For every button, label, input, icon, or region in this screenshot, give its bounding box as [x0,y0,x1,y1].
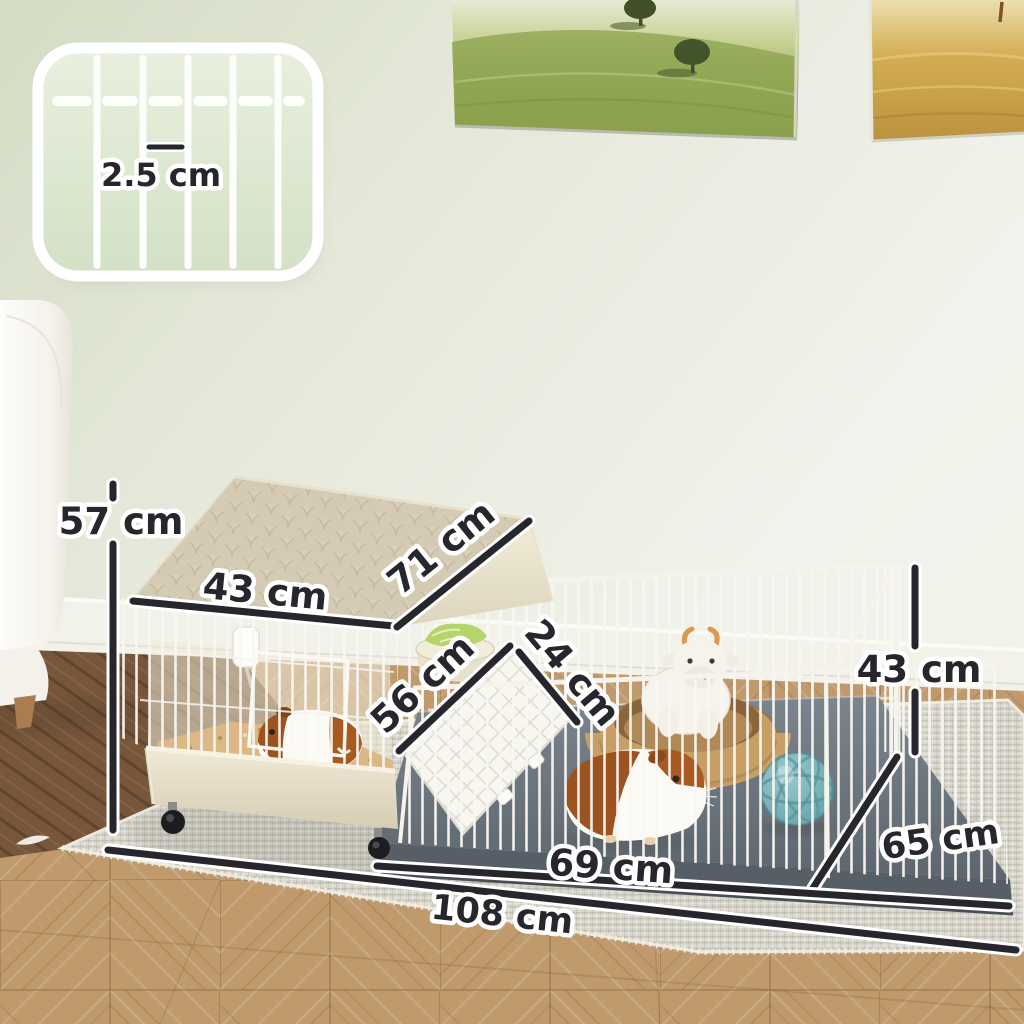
dimension-label-house-height: 57 cm57 cm [59,500,184,543]
painting-right [870,0,1024,141]
inset-label: 2.5 cm2.5 cm [101,156,221,194]
dimension-label-playpen-height: 43 cm43 cm [857,648,982,691]
svg-text:2.5 cm: 2.5 cm [101,156,221,194]
inset-horizontal-bar [52,96,305,106]
painting-left [452,0,800,139]
dimension-label-playpen-width: 69 cm69 cm [547,841,675,893]
svg-text:69 cm: 69 cm [547,841,675,893]
svg-text:43 cm: 43 cm [857,648,982,691]
inset-detail: 2.5 cm2.5 cm [38,48,322,284]
product-scene: 57 cm57 cm 43 cm43 cm 71 cm71 cm 56 cm56… [0,0,1024,1024]
svg-text:57 cm: 57 cm [59,500,184,543]
painting-tree-trunk [1000,2,1002,22]
